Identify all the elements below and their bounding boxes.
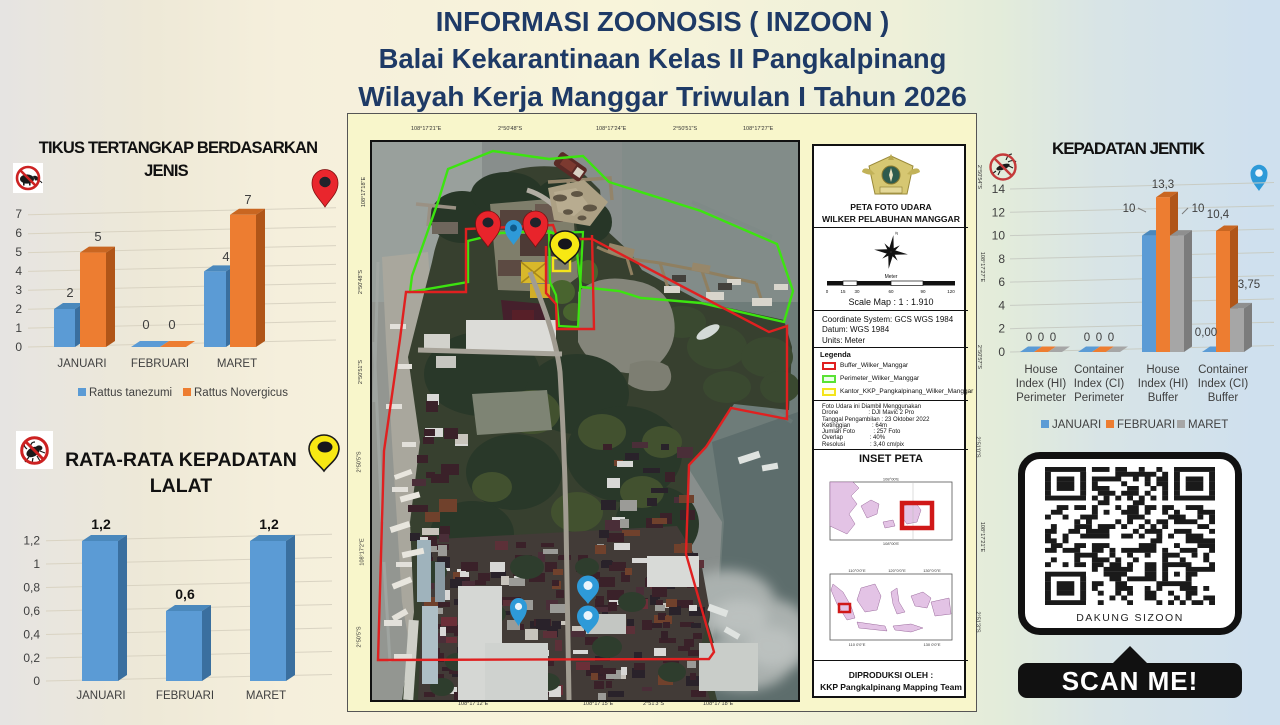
svg-text:120: 120 bbox=[947, 289, 955, 294]
svg-text:Rattus Novergicus: Rattus Novergicus bbox=[194, 387, 288, 399]
svg-text:0: 0 bbox=[1038, 332, 1044, 344]
svg-text:13,3: 13,3 bbox=[1152, 179, 1174, 191]
svg-text:Perimeter: Perimeter bbox=[1016, 392, 1066, 404]
svg-text:60: 60 bbox=[888, 289, 894, 294]
svg-text:0,2: 0,2 bbox=[23, 651, 40, 665]
svg-text:Index (HI): Index (HI) bbox=[1138, 378, 1189, 390]
svg-text:4: 4 bbox=[15, 264, 22, 278]
svg-text:7: 7 bbox=[244, 192, 251, 207]
svg-text:0: 0 bbox=[33, 674, 40, 688]
svg-text:0: 0 bbox=[826, 289, 829, 294]
svg-text:0,6: 0,6 bbox=[23, 604, 40, 618]
svg-text:Container: Container bbox=[1198, 364, 1248, 376]
svg-text:108°00'E: 108°00'E bbox=[883, 477, 899, 482]
svg-text:0,4: 0,4 bbox=[23, 628, 40, 642]
svg-text:130°0'0"E: 130°0'0"E bbox=[923, 568, 941, 573]
svg-text:0: 0 bbox=[1050, 332, 1056, 344]
svg-text:0,6: 0,6 bbox=[175, 586, 195, 602]
svg-text:N: N bbox=[895, 230, 899, 235]
svg-text:0: 0 bbox=[142, 317, 149, 332]
svg-text:FEBRUARI: FEBRUARI bbox=[131, 358, 189, 370]
svg-text:5: 5 bbox=[94, 229, 101, 244]
svg-text:1: 1 bbox=[33, 557, 40, 571]
svg-text:TIKUS TERTANGKAP BERDASARKAN: TIKUS TERTANGKAP BERDASARKAN bbox=[39, 139, 318, 157]
svg-text:3,75: 3,75 bbox=[1238, 279, 1260, 291]
svg-text:LALAT: LALAT bbox=[150, 475, 213, 497]
svg-text:JANUARI: JANUARI bbox=[76, 690, 125, 702]
svg-text:1,2: 1,2 bbox=[91, 516, 111, 532]
svg-text:12: 12 bbox=[992, 205, 1006, 219]
svg-text:6: 6 bbox=[15, 226, 22, 240]
svg-text:3: 3 bbox=[15, 283, 22, 297]
svg-text:130 0'0"E: 130 0'0"E bbox=[923, 642, 940, 647]
svg-text:15: 15 bbox=[840, 289, 846, 294]
svg-text:0: 0 bbox=[1096, 332, 1102, 344]
svg-text:Rattus tanezumi: Rattus tanezumi bbox=[89, 387, 172, 399]
svg-text:0: 0 bbox=[168, 317, 175, 332]
svg-text:8: 8 bbox=[998, 252, 1005, 266]
svg-text:0,8: 0,8 bbox=[23, 581, 40, 595]
svg-text:Index (CI): Index (CI) bbox=[1074, 378, 1125, 390]
svg-text:Perimeter: Perimeter bbox=[1074, 392, 1124, 404]
svg-text:4: 4 bbox=[998, 298, 1005, 312]
svg-text:7: 7 bbox=[15, 207, 22, 221]
svg-text:MARET: MARET bbox=[1188, 419, 1228, 431]
svg-text:2: 2 bbox=[998, 322, 1005, 336]
svg-text:0: 0 bbox=[1084, 332, 1090, 344]
svg-text:Index (CI): Index (CI) bbox=[1198, 378, 1249, 390]
svg-text:10: 10 bbox=[1123, 203, 1136, 215]
svg-text:MARET: MARET bbox=[217, 358, 257, 370]
svg-text:0: 0 bbox=[1108, 332, 1114, 344]
svg-text:30: 30 bbox=[854, 289, 860, 294]
svg-text:Container: Container bbox=[1074, 364, 1124, 376]
svg-text:RATA-RATA KEPADATAN: RATA-RATA KEPADATAN bbox=[65, 449, 297, 471]
svg-text:110 0'0"E: 110 0'0"E bbox=[849, 642, 866, 647]
svg-text:0: 0 bbox=[15, 340, 22, 354]
svg-text:4: 4 bbox=[222, 249, 229, 264]
svg-text:JANUARI: JANUARI bbox=[1052, 419, 1101, 431]
svg-text:10,4: 10,4 bbox=[1207, 209, 1230, 221]
svg-text:1,2: 1,2 bbox=[259, 516, 279, 532]
svg-text:0: 0 bbox=[1026, 332, 1032, 344]
svg-text:Index (HI): Index (HI) bbox=[1016, 378, 1067, 390]
svg-text:120°0'0"E: 120°0'0"E bbox=[888, 568, 906, 573]
svg-text:MARET: MARET bbox=[246, 690, 286, 702]
svg-text:0: 0 bbox=[998, 345, 1005, 359]
svg-text:House: House bbox=[1146, 364, 1179, 376]
svg-text:FEBRUARI: FEBRUARI bbox=[156, 690, 214, 702]
svg-text:2: 2 bbox=[66, 285, 73, 300]
svg-text:SCAN ME!: SCAN ME! bbox=[1062, 666, 1199, 696]
svg-text:14: 14 bbox=[992, 182, 1006, 196]
svg-text:KEPADATAN JENTIK: KEPADATAN JENTIK bbox=[1052, 139, 1206, 158]
svg-text:10: 10 bbox=[992, 229, 1006, 243]
svg-text:6: 6 bbox=[998, 275, 1005, 289]
svg-text:110°0'0"E: 110°0'0"E bbox=[848, 568, 866, 573]
svg-text:108°00'E: 108°00'E bbox=[883, 541, 899, 546]
svg-text:Buffer: Buffer bbox=[1208, 392, 1239, 404]
svg-text:FEBRUARI: FEBRUARI bbox=[1117, 419, 1175, 431]
svg-text:90: 90 bbox=[920, 289, 926, 294]
svg-text:10: 10 bbox=[1192, 203, 1205, 215]
svg-text:Buffer: Buffer bbox=[1148, 392, 1179, 404]
svg-text:JANUARI: JANUARI bbox=[57, 358, 106, 370]
svg-text:5: 5 bbox=[15, 245, 22, 259]
svg-text:1: 1 bbox=[15, 321, 22, 335]
svg-text:2: 2 bbox=[15, 302, 22, 316]
svg-text:House: House bbox=[1024, 364, 1057, 376]
svg-text:JENIS: JENIS bbox=[144, 162, 188, 180]
svg-text:1,2: 1,2 bbox=[23, 534, 40, 548]
svg-text:0,00: 0,00 bbox=[1195, 327, 1217, 339]
